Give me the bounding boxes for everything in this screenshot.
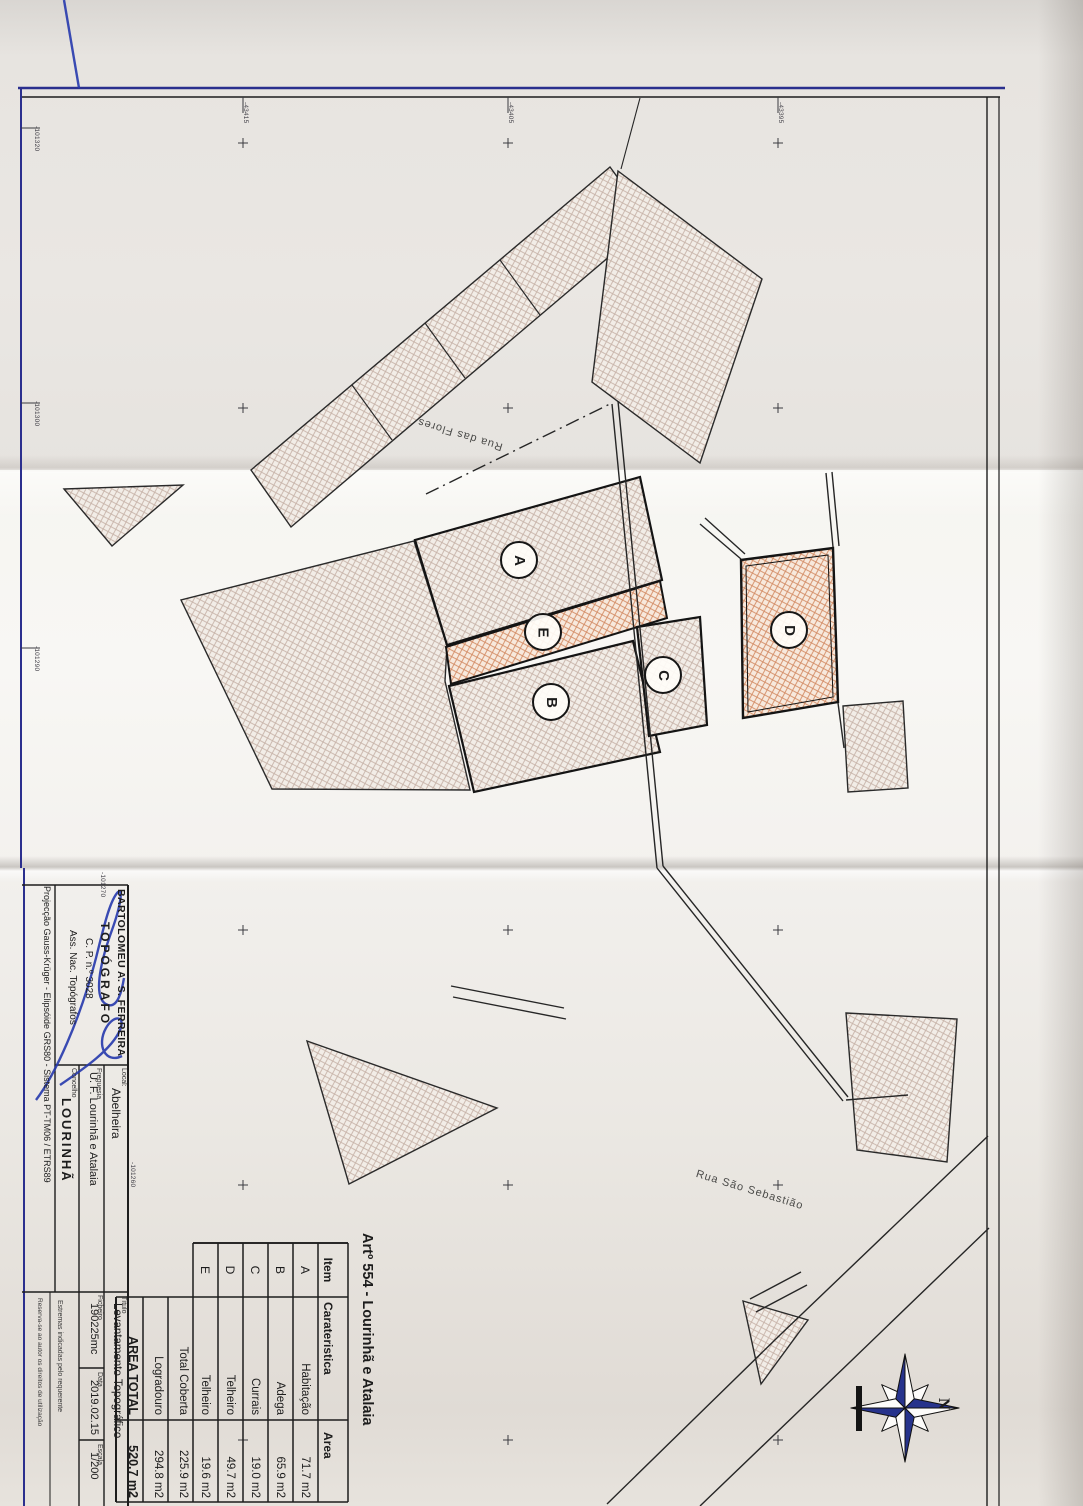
table-row-area: 49.7 m2	[223, 1420, 236, 1498]
table-total-label: Logradouro	[151, 1297, 164, 1415]
field-value-ficheiro: 190225mc	[88, 1303, 100, 1354]
table-row-item: B	[273, 1243, 286, 1297]
table-total-area: 294.8 m2	[151, 1420, 164, 1498]
building-letter: E	[534, 627, 551, 637]
building-letter: A	[511, 555, 528, 566]
title-block-note: Reserva-se ao autor os direitos de utili…	[36, 1298, 43, 1426]
building-label-D: D	[770, 611, 808, 649]
building-letter: B	[543, 697, 560, 708]
area-table-title: Artº 554 - Lourinhã e Atalaia	[358, 1233, 374, 1426]
title-block-note: Estremas indicadas pelo requerente	[55, 1300, 63, 1412]
table-header-item: Item	[321, 1243, 334, 1297]
table-row-feature: Currais	[248, 1297, 261, 1415]
field-label-local: Local:	[119, 1068, 127, 1087]
table-grand-total-label: AREA TOTAL	[125, 1297, 139, 1415]
table-row-item: C	[248, 1243, 261, 1297]
building-label-A: A	[500, 541, 538, 579]
field-value-local: Abelheira	[109, 1088, 122, 1139]
surveyor-association: Ass. Nac. Topógrafos	[67, 930, 78, 1025]
surveyor-name: BARTOLOMEU A. S. FERREIRA	[114, 889, 126, 1063]
surveyor-title: TOPÓGRAFO	[98, 922, 111, 1026]
north-label: N	[934, 1398, 952, 1410]
building-label-E: E	[524, 613, 562, 651]
table-total-label: Total Coberta	[176, 1297, 189, 1415]
table-grand-total-area: 520.7 m2	[125, 1420, 139, 1498]
table-row-area: 19.6 m2	[198, 1420, 211, 1498]
field-label-concelho: Concelho	[69, 1068, 77, 1098]
field-value-titulo: Levantamento Topográfico	[110, 1303, 123, 1438]
table-row-area: 65.9 m2	[273, 1420, 286, 1498]
field-value-data: 2019.02.15	[88, 1380, 100, 1435]
table-header-area: Area	[321, 1432, 334, 1498]
coordinate-label: -43415	[242, 102, 249, 123]
table-row-feature: Adega	[273, 1297, 286, 1415]
table-row-area: 71.7 m2	[298, 1420, 311, 1498]
building-label-B: B	[532, 683, 570, 721]
field-value-concelho: LOURINHÃ	[59, 1098, 73, 1183]
coordinate-label: -43395	[777, 102, 784, 123]
scanned-survey-sheet: -101320 -101300 -101290 -101270 -101260 …	[0, 0, 1083, 1506]
table-row-item: E	[198, 1243, 211, 1297]
compass-side-mark	[856, 1386, 862, 1431]
coordinate-label: -43405	[507, 102, 514, 123]
table-row-feature: Telheiro	[198, 1297, 211, 1415]
coordinate-label: -101320	[33, 126, 40, 151]
field-value-freguesia: U. F. Lourinhã e Atalaia	[87, 1072, 99, 1186]
table-header-feature: Carateristica	[321, 1302, 334, 1416]
coordinate-label: -101260	[129, 1162, 136, 1187]
table-row-item: D	[223, 1243, 236, 1297]
surveyor-license: C. P. n.º 3028	[83, 938, 94, 999]
coordinate-label: -101290	[33, 646, 40, 671]
building-letter: C	[655, 670, 672, 681]
building-label-C: C	[644, 656, 682, 694]
building-letter: D	[781, 625, 798, 636]
area-table-frame	[116, 1166, 1083, 1503]
table-total-area: 225.9 m2	[176, 1420, 189, 1498]
coordinate-label: -101300	[33, 401, 40, 426]
table-row-item: A	[298, 1243, 311, 1297]
table-row-area: 19.0 m2	[248, 1420, 261, 1498]
projection-note: Projecção Gauss-Krüger - Elipsóide GRS80…	[41, 886, 51, 1183]
plan-linework	[0, 0, 1083, 1506]
field-value-escala: 1/200	[88, 1452, 100, 1480]
table-row-feature: Habitação	[298, 1297, 311, 1415]
coordinate-label: -101270	[99, 872, 106, 897]
table-row-feature: Telheiro	[223, 1297, 236, 1415]
